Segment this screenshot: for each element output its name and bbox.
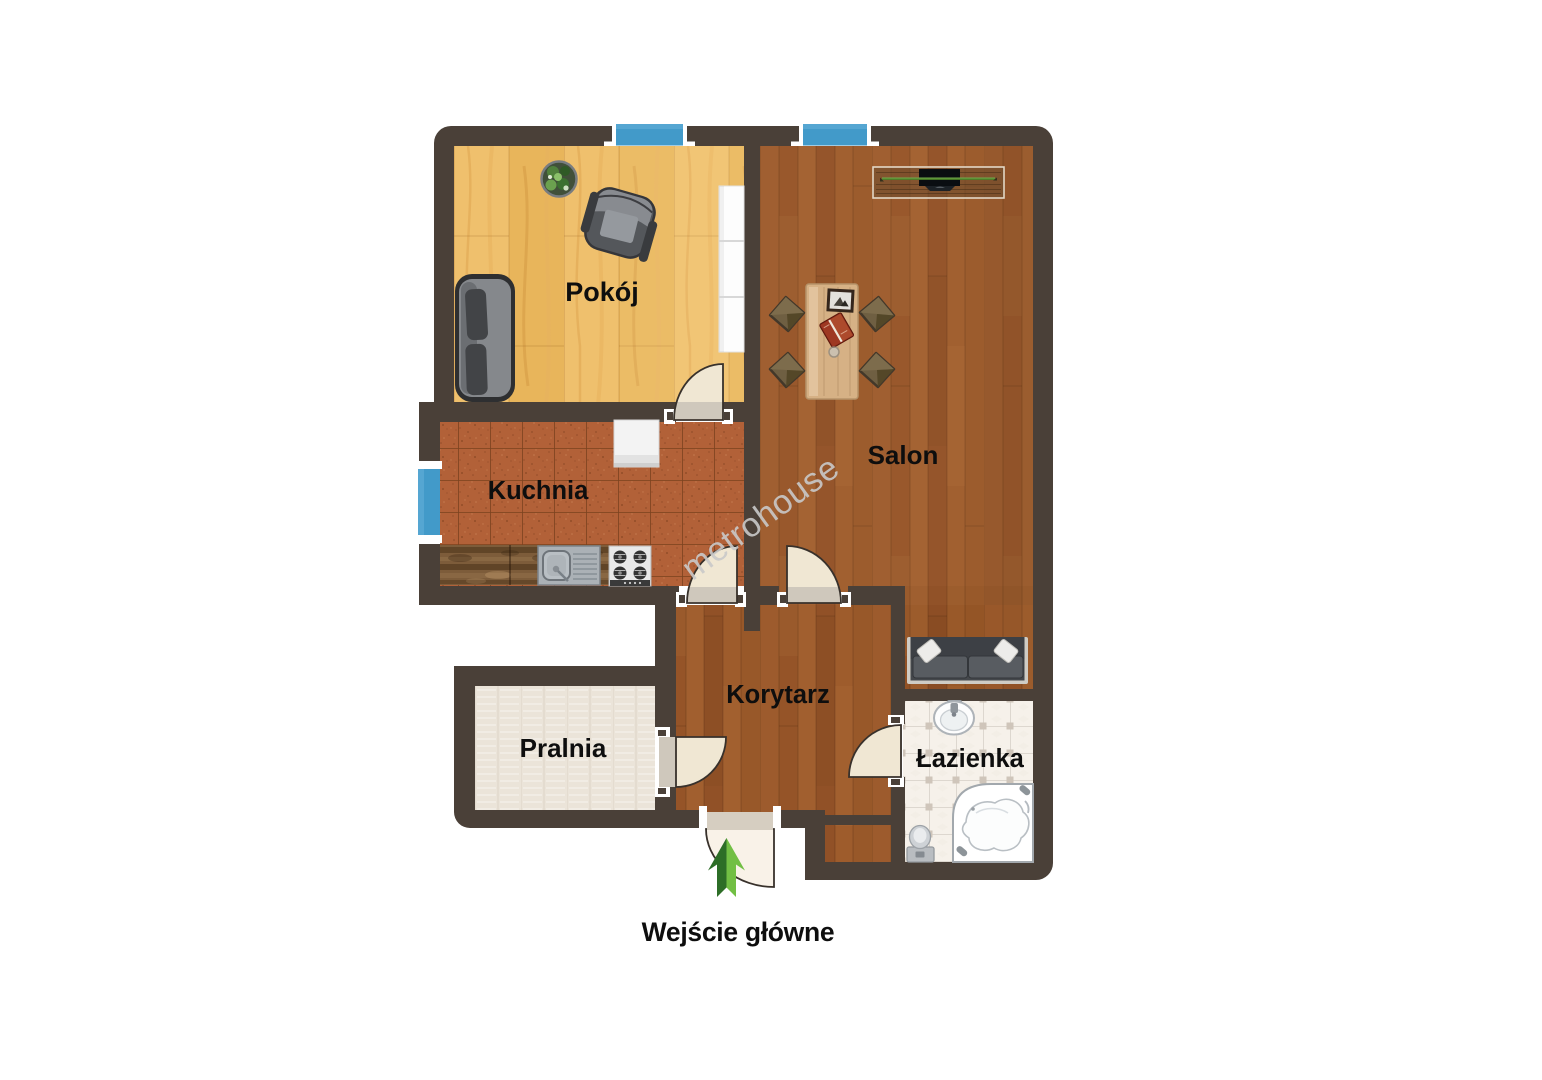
svg-text:Pralnia: Pralnia <box>520 733 607 763</box>
svg-text:Wejście główne: Wejście główne <box>642 917 835 947</box>
svg-text:Łazienka: Łazienka <box>916 745 1025 773</box>
svg-text:Korytarz: Korytarz <box>726 681 829 709</box>
svg-text:Kuchnia: Kuchnia <box>488 477 589 505</box>
svg-text:Pokój: Pokój <box>565 277 639 307</box>
svg-text:Salon: Salon <box>868 440 939 470</box>
